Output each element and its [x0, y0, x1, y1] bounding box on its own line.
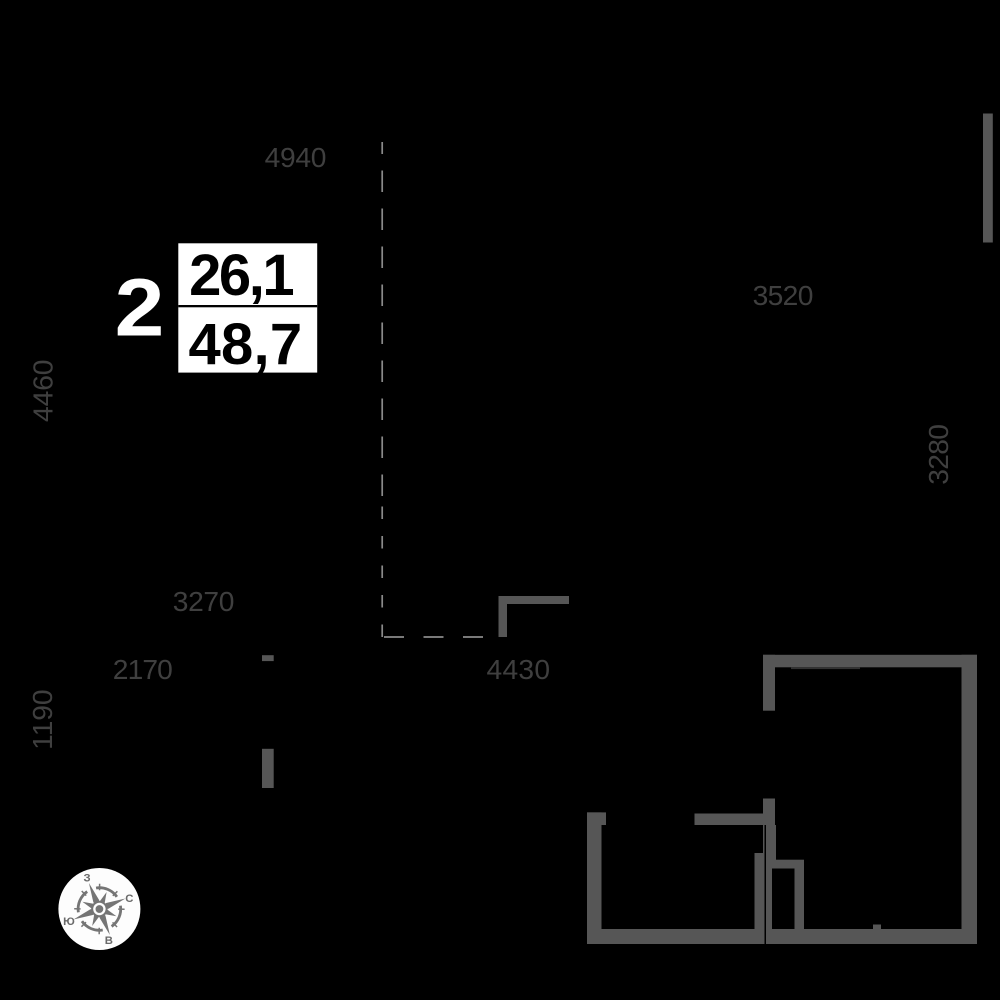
svg-text:В: В: [105, 935, 113, 947]
svg-text:48,7: 48,7: [189, 312, 303, 377]
svg-text:2: 2: [115, 263, 165, 354]
svg-text:1190: 1190: [26, 689, 58, 749]
svg-text:Ю: Ю: [63, 916, 75, 928]
svg-text:3270: 3270: [173, 585, 235, 617]
svg-text:3280: 3280: [922, 424, 954, 485]
svg-text:С: С: [125, 893, 133, 905]
svg-text:4430: 4430: [487, 653, 551, 685]
svg-text:26,1: 26,1: [189, 243, 295, 308]
svg-text:2170: 2170: [113, 653, 173, 685]
svg-text:4460: 4460: [26, 360, 58, 423]
svg-text:4940: 4940: [265, 141, 327, 173]
svg-text:3520: 3520: [753, 279, 814, 311]
svg-text:З: З: [83, 872, 90, 884]
